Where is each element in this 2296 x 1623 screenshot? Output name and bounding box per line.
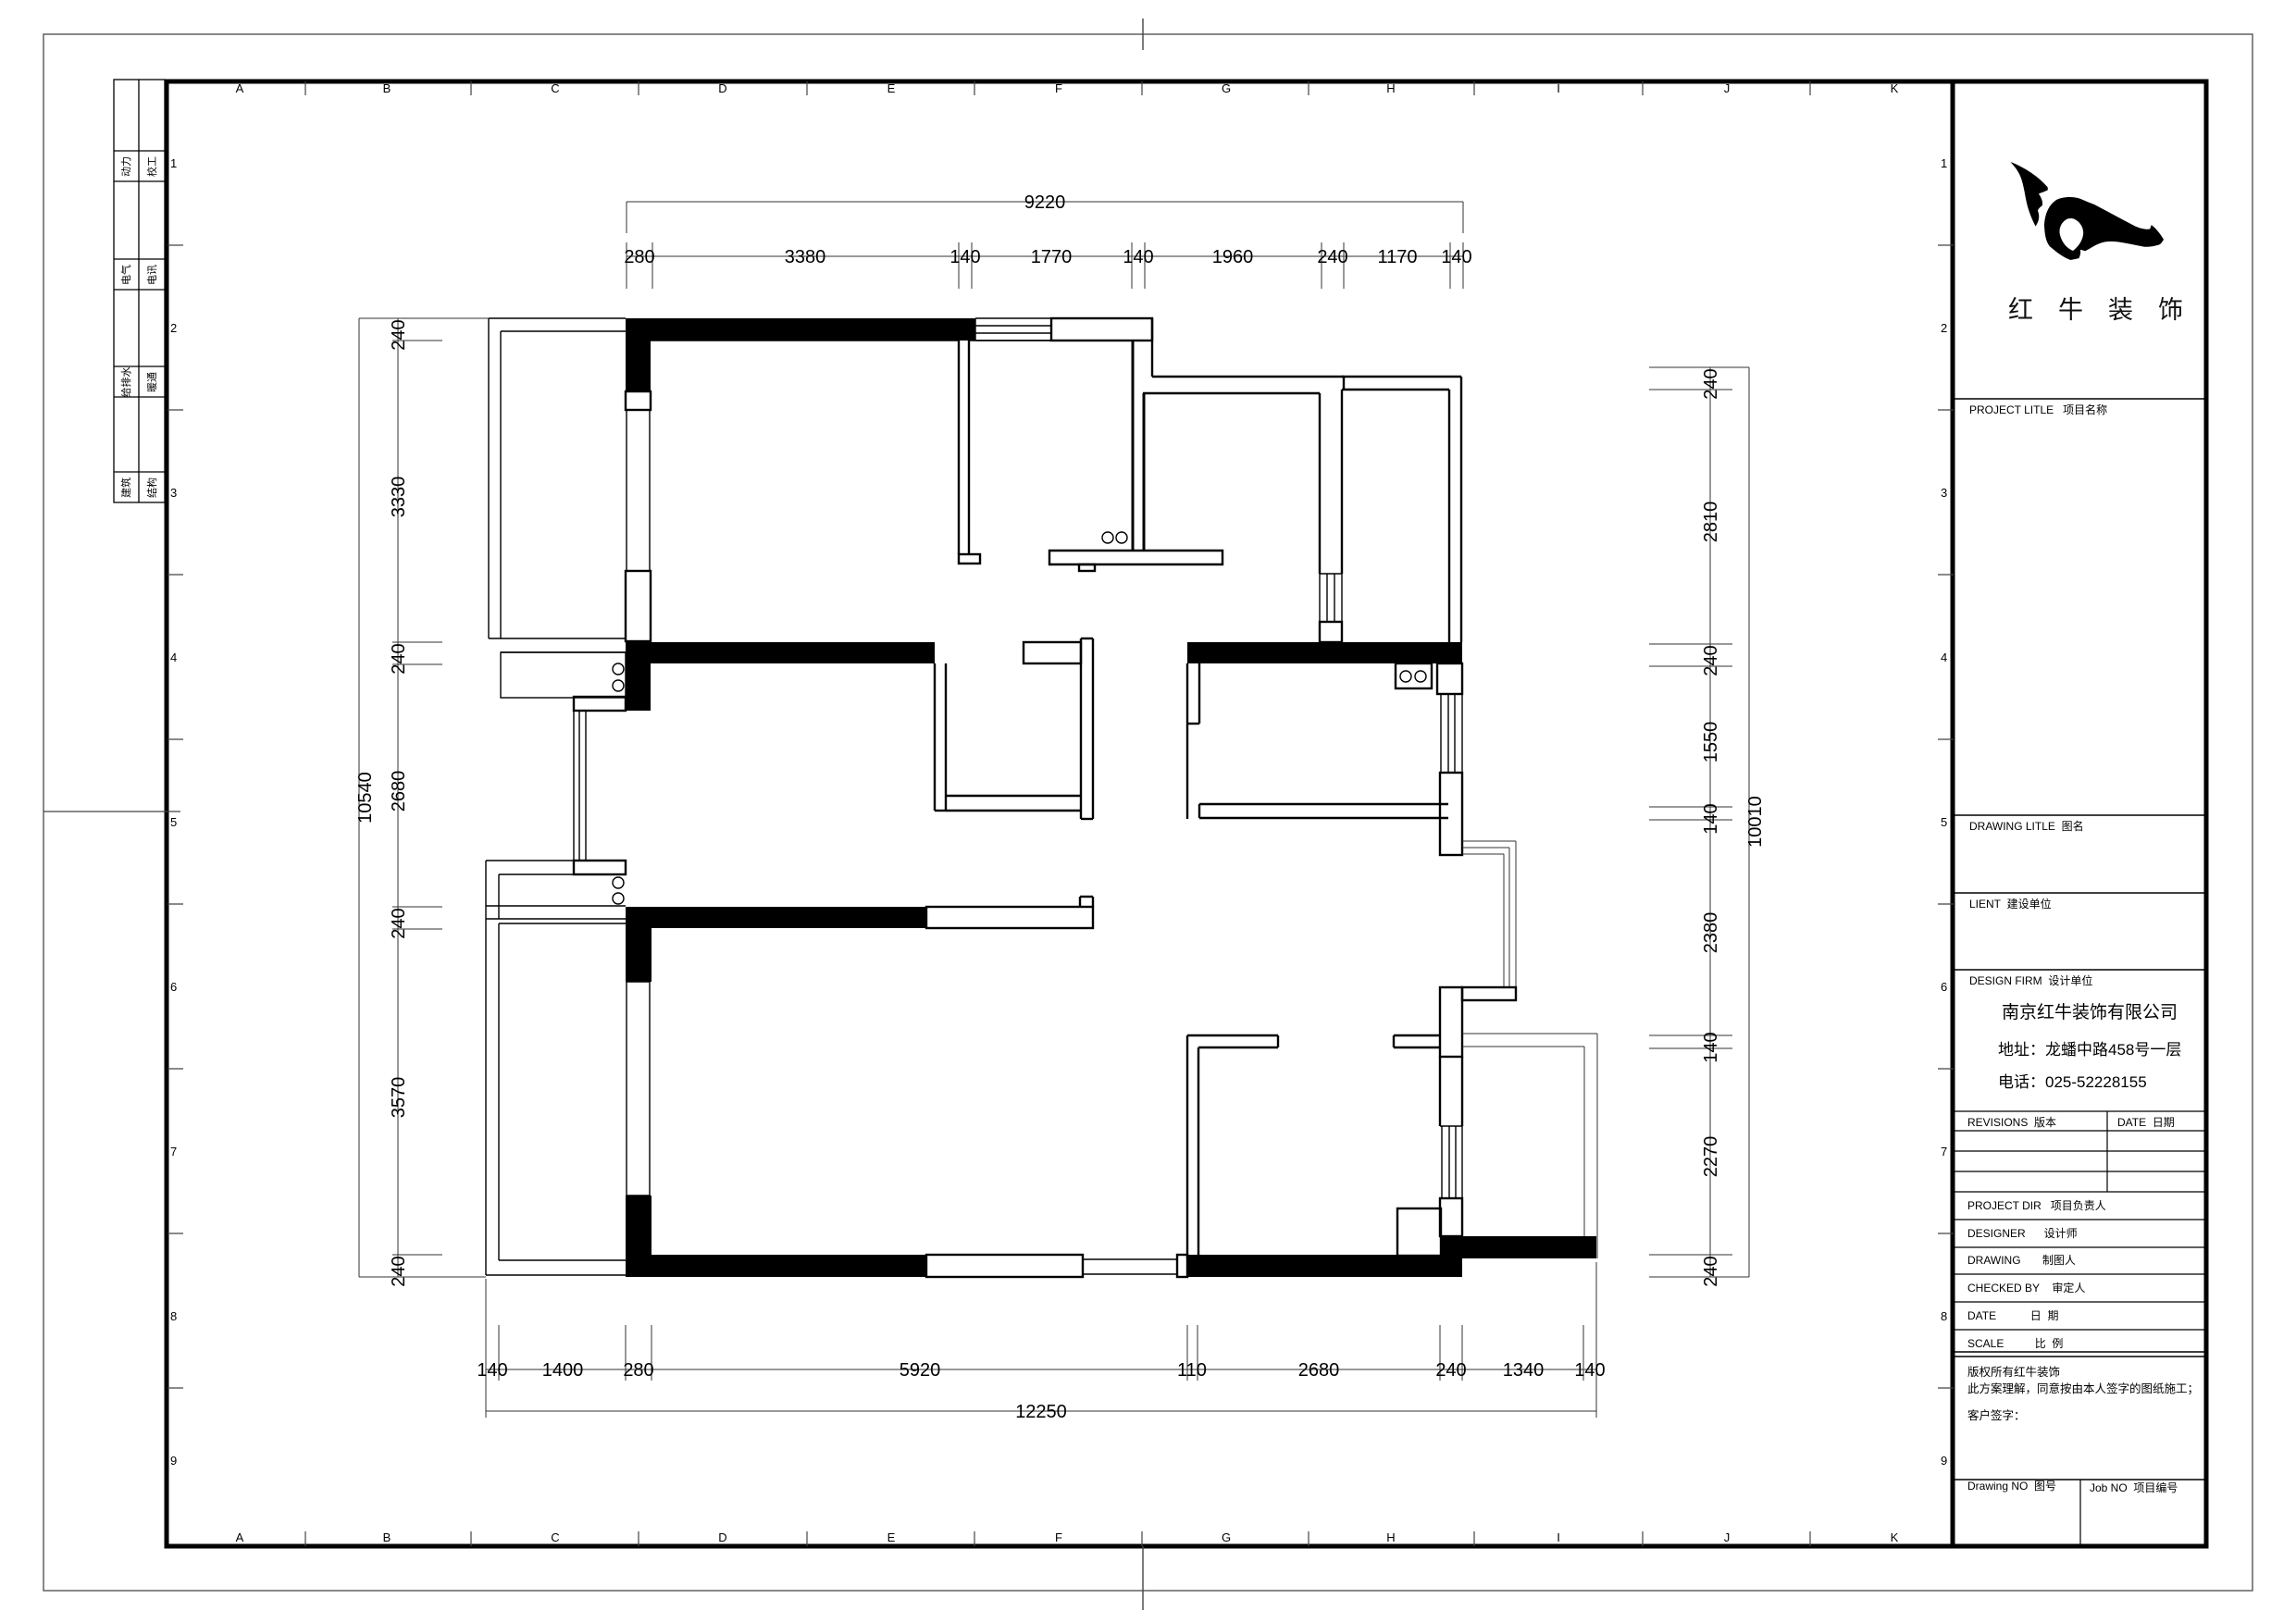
svg-text:K: K: [1891, 1530, 1899, 1544]
svg-text:140: 140: [1701, 803, 1721, 834]
svg-text:240: 240: [389, 1256, 409, 1286]
svg-text:DRAWING LITLE 图名: DRAWING LITLE 图名: [1969, 819, 2084, 833]
svg-text:电话：025-52228155: 电话：025-52228155: [1998, 1073, 2147, 1091]
svg-text:5: 5: [170, 815, 177, 829]
svg-text:CHECKED BY 审定人: CHECKED BY 审定人: [1967, 1281, 2085, 1295]
svg-text:6: 6: [170, 980, 177, 994]
svg-text:2810: 2810: [1701, 502, 1721, 543]
svg-text:240: 240: [389, 643, 409, 674]
svg-text:南京红牛装饰有限公司: 南京红牛装饰有限公司: [2002, 1002, 2178, 1022]
svg-text:1550: 1550: [1701, 722, 1721, 763]
svg-text:C: C: [551, 1530, 559, 1544]
svg-text:D: D: [718, 1530, 726, 1544]
svg-text:建筑: 建筑: [119, 477, 132, 498]
svg-text:1400: 1400: [542, 1360, 584, 1381]
svg-text:140: 140: [1701, 1032, 1721, 1062]
svg-text:10010: 10010: [1745, 796, 1766, 848]
svg-text:A: A: [236, 81, 244, 95]
svg-text:3: 3: [170, 486, 177, 500]
svg-text:DRAWING 制图人: DRAWING 制图人: [1967, 1254, 2076, 1267]
svg-text:240: 240: [389, 319, 409, 350]
svg-text:A: A: [236, 1530, 244, 1544]
svg-text:B: B: [383, 1530, 391, 1544]
svg-text:给排水: 给排水: [119, 367, 132, 398]
svg-text:J: J: [1724, 81, 1731, 95]
svg-text:240: 240: [389, 908, 409, 938]
svg-text:2: 2: [170, 321, 177, 335]
svg-text:I: I: [1557, 1530, 1560, 1544]
svg-text:240: 240: [1701, 368, 1721, 399]
svg-text:动力: 动力: [120, 156, 132, 177]
svg-text:F: F: [1055, 1530, 1062, 1544]
svg-text:1960: 1960: [1212, 247, 1254, 267]
svg-text:客户签字：: 客户签字：: [1967, 1408, 2026, 1422]
svg-text:2380: 2380: [1701, 912, 1721, 954]
svg-text:3380: 3380: [785, 247, 826, 267]
svg-text:版权所有红牛装饰: 版权所有红牛装饰: [1967, 1365, 2060, 1379]
svg-text:1770: 1770: [1031, 247, 1073, 267]
svg-text:K: K: [1891, 81, 1899, 95]
svg-text:4: 4: [1941, 650, 1947, 664]
svg-text:1340: 1340: [1503, 1360, 1545, 1381]
svg-text:140: 140: [1441, 247, 1471, 267]
svg-text:电讯: 电讯: [146, 265, 158, 285]
svg-text:地址：龙蟠中路458号一层: 地址：龙蟠中路458号一层: [1998, 1041, 2181, 1059]
svg-text:9: 9: [1941, 1454, 1947, 1468]
svg-text:280: 280: [623, 1360, 653, 1381]
svg-text:E: E: [887, 1530, 896, 1544]
svg-text:暖通: 暖通: [146, 372, 158, 392]
svg-text:PROJECT DIR 项目负责人: PROJECT DIR 项目负责人: [1967, 1199, 2106, 1212]
svg-text:1170: 1170: [1377, 247, 1417, 267]
svg-text:G: G: [1222, 1530, 1231, 1544]
svg-text:280: 280: [624, 247, 654, 267]
svg-text:140: 140: [477, 1360, 507, 1381]
svg-text:240: 240: [1317, 247, 1347, 267]
svg-text:240: 240: [1701, 1256, 1721, 1286]
svg-text:6: 6: [1941, 980, 1947, 994]
svg-text:SCALE 比 例: SCALE 比 例: [1967, 1337, 2063, 1350]
svg-text:140: 140: [1574, 1360, 1605, 1381]
svg-text:DATE 日 期: DATE 日 期: [1967, 1309, 2058, 1322]
svg-text:DESIGNER 设计师: DESIGNER 设计师: [1967, 1227, 2078, 1240]
svg-text:5: 5: [1941, 815, 1947, 829]
svg-text:2: 2: [1941, 321, 1947, 335]
svg-text:9220: 9220: [1024, 192, 1066, 213]
svg-text:110: 110: [1177, 1360, 1207, 1381]
svg-text:Drawing NO 图号: Drawing NO 图号: [1967, 1480, 2056, 1493]
svg-text:H: H: [1386, 81, 1395, 95]
svg-text:1: 1: [170, 156, 177, 170]
svg-text:PROJECT LITLE 项目名称: PROJECT LITLE 项目名称: [1969, 403, 2107, 416]
svg-text:140: 140: [1123, 247, 1153, 267]
svg-text:I: I: [1557, 81, 1560, 95]
svg-text:电气: 电气: [119, 265, 132, 285]
svg-text:F: F: [1055, 81, 1062, 95]
svg-text:REVISIONS 版本: REVISIONS 版本: [1967, 1116, 2056, 1129]
svg-text:E: E: [887, 81, 896, 95]
svg-text:D: D: [718, 81, 726, 95]
svg-text:8: 8: [1941, 1309, 1947, 1323]
svg-text:Job NO 项目编号: Job NO 项目编号: [2090, 1481, 2178, 1494]
svg-text:C: C: [551, 81, 559, 95]
svg-text:J: J: [1724, 1530, 1731, 1544]
svg-text:4: 4: [170, 650, 177, 664]
svg-text:5920: 5920: [900, 1360, 941, 1381]
svg-text:G: G: [1222, 81, 1231, 95]
svg-text:3330: 3330: [389, 477, 409, 518]
svg-text:8: 8: [170, 1309, 177, 1323]
svg-text:1: 1: [1941, 156, 1947, 170]
svg-text:红牛装饰: 红牛装饰: [2008, 296, 2208, 324]
svg-text:9: 9: [170, 1454, 177, 1468]
svg-text:B: B: [383, 81, 391, 95]
svg-text:2680: 2680: [389, 771, 409, 812]
svg-text:7: 7: [170, 1145, 177, 1158]
svg-text:140: 140: [949, 247, 980, 267]
svg-text:10540: 10540: [355, 772, 376, 824]
svg-text:DESIGN FIRM 设计单位: DESIGN FIRM 设计单位: [1969, 973, 2092, 987]
svg-text:DATE 日期: DATE 日期: [2117, 1116, 2175, 1129]
svg-text:LIENT 建设单位: LIENT 建设单位: [1969, 897, 2052, 911]
svg-text:校工: 校工: [145, 156, 158, 177]
svg-text:H: H: [1386, 1530, 1395, 1544]
svg-text:7: 7: [1941, 1145, 1947, 1158]
svg-text:12250: 12250: [1015, 1402, 1067, 1422]
svg-text:2270: 2270: [1701, 1136, 1721, 1178]
svg-text:240: 240: [1435, 1360, 1466, 1381]
svg-text:3570: 3570: [389, 1077, 409, 1119]
svg-text:3: 3: [1941, 486, 1947, 500]
svg-text:240: 240: [1701, 645, 1721, 675]
svg-text:2680: 2680: [1298, 1360, 1340, 1381]
svg-text:结构: 结构: [145, 477, 158, 498]
svg-text:此方案理解，同意按由本人签字的图纸施工；: 此方案理解，同意按由本人签字的图纸施工；: [1967, 1381, 2199, 1395]
